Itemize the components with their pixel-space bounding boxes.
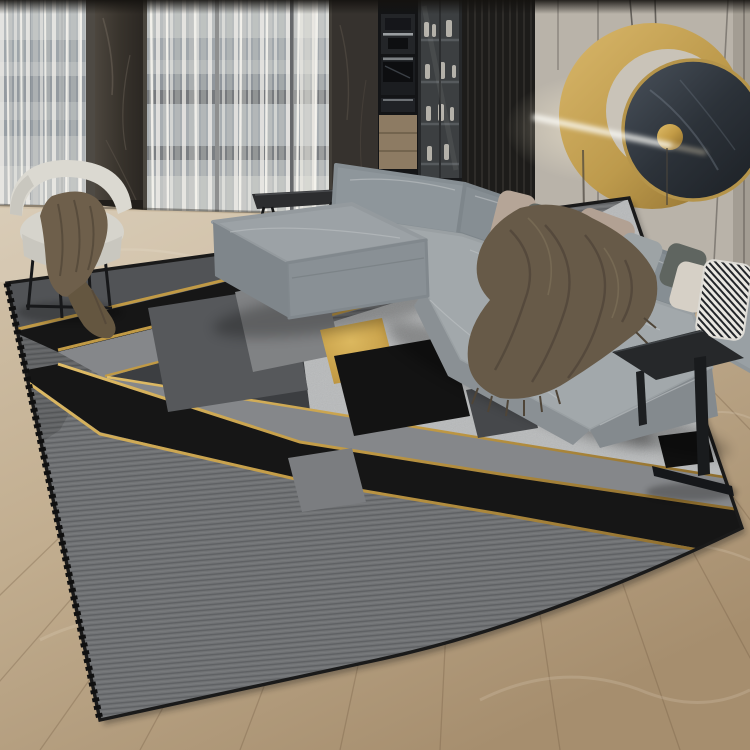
living-room-photo: [0, 0, 750, 750]
window-frame: [143, 0, 147, 214]
scene-canvas: [0, 0, 750, 750]
window-center: [143, 0, 334, 216]
pillow-striped: [695, 259, 750, 341]
wood-drawers: [379, 115, 417, 169]
square-gray-on-band: [288, 448, 366, 512]
curtain-bright-fold: [300, 0, 314, 212]
ceiling-shadow: [0, 0, 750, 14]
